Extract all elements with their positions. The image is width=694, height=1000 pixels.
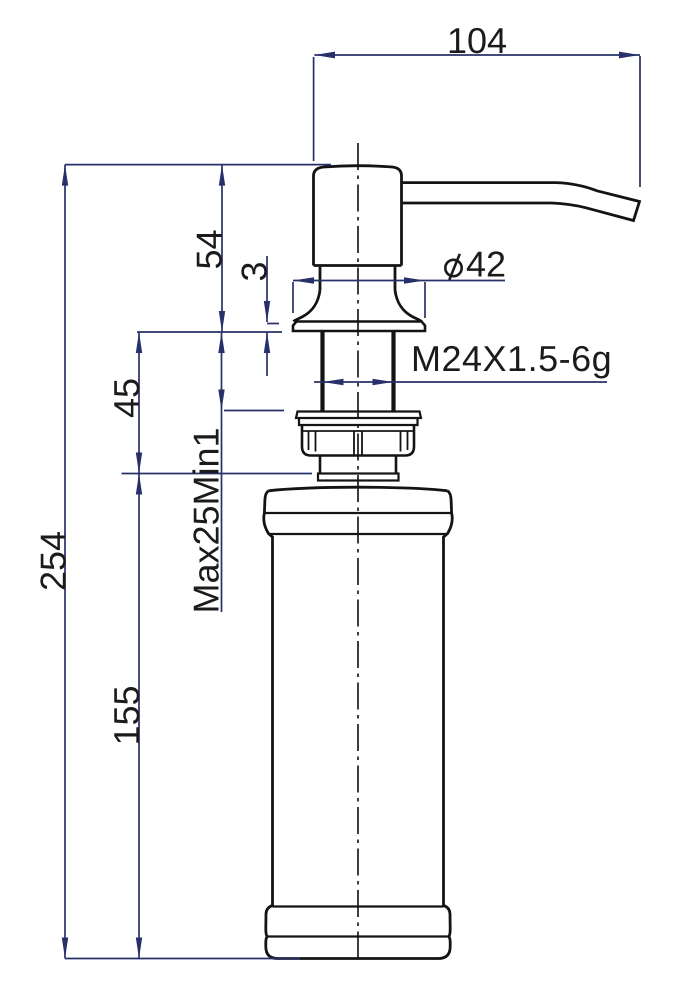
svg-text:M24X1.5-6g: M24X1.5-6g bbox=[411, 338, 612, 379]
svg-text:155: 155 bbox=[106, 685, 147, 745]
svg-text:104: 104 bbox=[447, 20, 507, 61]
svg-text:3: 3 bbox=[234, 261, 275, 281]
svg-text:42: 42 bbox=[466, 244, 506, 285]
svg-text:45: 45 bbox=[106, 378, 147, 418]
svg-text:54: 54 bbox=[189, 229, 230, 269]
svg-text:254: 254 bbox=[33, 531, 74, 591]
svg-text:Max25Min1: Max25Min1 bbox=[186, 427, 227, 613]
